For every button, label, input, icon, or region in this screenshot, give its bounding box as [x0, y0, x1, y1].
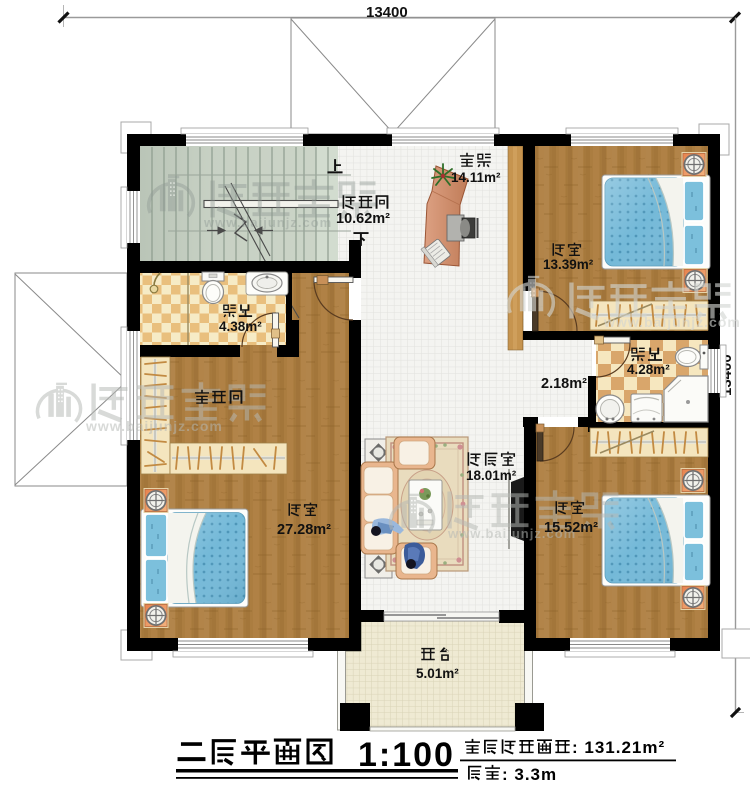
svg-text:15.52m²: 15.52m² — [544, 520, 598, 536]
svg-text:18.01m²: 18.01m² — [466, 468, 517, 483]
svg-text:: 131.21m²: : 131.21m² — [572, 738, 665, 757]
svg-text:4.28m²: 4.28m² — [627, 362, 670, 377]
svg-text:: 3.3m: : 3.3m — [502, 765, 557, 784]
svg-text:5.01m²: 5.01m² — [416, 666, 459, 681]
svg-text:27.28m²: 27.28m² — [277, 522, 331, 538]
svg-text:www.baijunjz.com: www.baijunjz.com — [203, 215, 332, 230]
svg-text:13.39m²: 13.39m² — [543, 257, 594, 272]
svg-text:10.62m²: 10.62m² — [336, 211, 390, 227]
svg-text:1:100: 1:100 — [358, 736, 455, 774]
svg-text:14.11m²: 14.11m² — [451, 170, 501, 185]
svg-text:4.38m²: 4.38m² — [219, 319, 262, 334]
svg-text:www.baijunjz.com: www.baijunjz.com — [85, 418, 223, 434]
svg-text:www.baijunjz.com: www.baijunjz.com — [603, 314, 741, 330]
svg-text:2.18m²: 2.18m² — [541, 376, 587, 392]
